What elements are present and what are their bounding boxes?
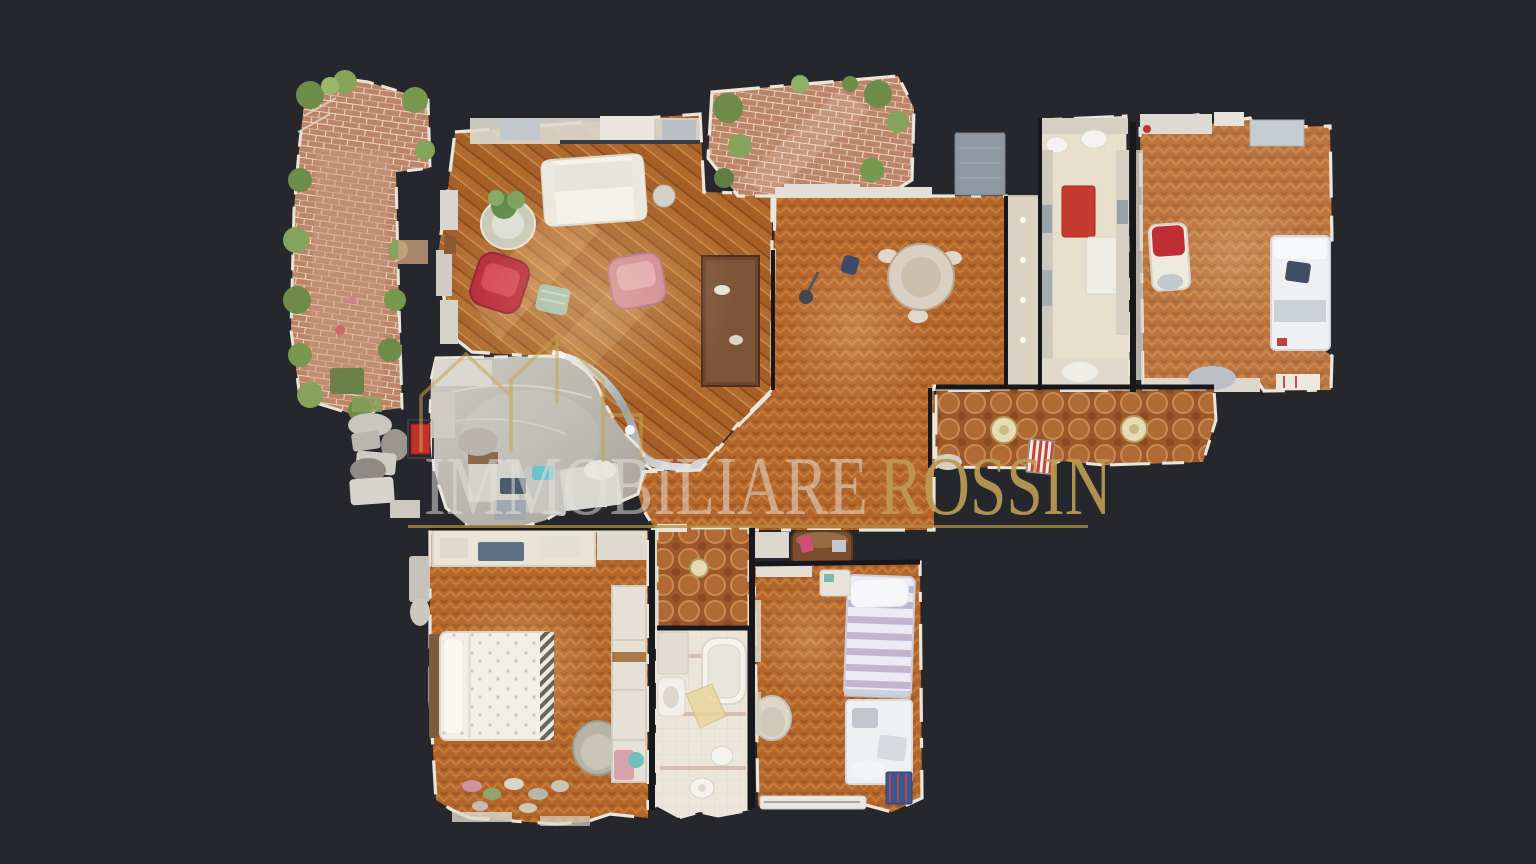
kitchen <box>1040 116 1130 390</box>
striped-bed <box>844 575 915 699</box>
cupboard-strip <box>1006 196 1040 386</box>
hallway-lower <box>651 524 749 628</box>
floorplan-svg <box>0 0 1536 864</box>
dollhouse-floorplan-view[interactable]: IMMOBILIAREROSSIN <box>0 0 1536 864</box>
counter-right <box>1116 150 1129 335</box>
utility-clutter <box>348 413 420 518</box>
bedside-cabinet <box>820 570 850 596</box>
hall-clutter <box>755 532 789 558</box>
double-bed <box>429 632 554 740</box>
radiator <box>760 796 866 809</box>
bathroom <box>656 630 750 818</box>
dining-top-wall <box>775 187 932 198</box>
terrace-top <box>708 75 914 196</box>
desk-area <box>846 700 912 784</box>
single-bed <box>1271 236 1330 350</box>
living-top-wall <box>470 116 700 144</box>
bedroom-single <box>752 562 922 812</box>
patterned-bag <box>886 772 912 804</box>
hallway-lower-floor[interactable] <box>657 528 749 628</box>
hallway-right-floor[interactable] <box>936 389 1216 468</box>
side-cabinets <box>612 586 646 782</box>
wardrobe <box>1250 120 1304 146</box>
deck-chair <box>1026 439 1054 474</box>
red-panel <box>408 420 433 458</box>
hallway-right <box>934 385 1216 474</box>
sink <box>658 678 685 716</box>
wc-fixture <box>1081 130 1107 148</box>
toilet <box>711 747 742 766</box>
bedroom-top-right <box>1136 112 1332 394</box>
balcony-door-rug <box>955 133 1005 195</box>
top-wall <box>1140 114 1212 134</box>
red-mat <box>1062 186 1095 237</box>
red-chair <box>1148 223 1191 291</box>
bath-cabinet <box>658 632 688 674</box>
bedroom-master <box>409 530 648 826</box>
hall-dresser <box>792 531 852 565</box>
bidet <box>690 778 714 798</box>
